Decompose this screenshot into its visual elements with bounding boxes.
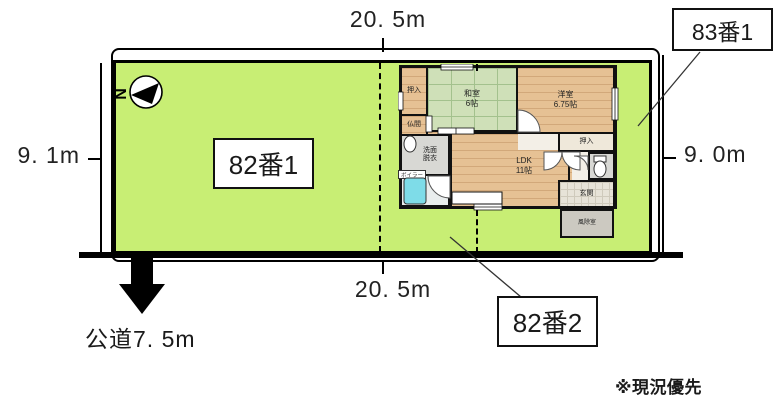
floor-plan: 押入 仏間 和室 6帖 洋室 6.75帖 洗面 脱衣 LDK 11帖 押入 玄関… xyxy=(398,64,622,242)
room-label: 押入 xyxy=(580,138,594,146)
parcel-number: 83番1 xyxy=(692,13,753,47)
road-edge-line xyxy=(79,252,683,258)
room-label: 洗面 脱衣 xyxy=(423,147,437,163)
room-closet-top: 押入 xyxy=(400,66,428,116)
hallway-lower xyxy=(572,152,588,180)
boiler-tag: ボイラー xyxy=(398,170,426,179)
room-vestibule: 風除室 xyxy=(560,209,614,238)
room-label: 風除室 xyxy=(578,220,596,227)
room-toilet xyxy=(588,152,615,180)
room-closet-right: 押入 xyxy=(558,132,615,152)
room-label: 和室 6帖 xyxy=(464,89,480,108)
footnote: ※現況優先 xyxy=(615,373,702,398)
dimension-bottom: 20. 5m xyxy=(333,276,453,303)
boundary-dashed-line-1 xyxy=(379,63,381,252)
room-youshitsu: 洋室 6.75帖 xyxy=(516,66,615,134)
parcel-label-83-1: 83番1 xyxy=(672,8,773,51)
parcel-number: 82番2 xyxy=(513,303,582,340)
site-plan-diagram: N 押入 仏間 和室 6帖 洋室 6.75帖 洗面 脱衣 LDK 11帖 押入 xyxy=(0,0,778,407)
boiler-label: ボイラー xyxy=(401,171,423,179)
parcel-number: 82番1 xyxy=(229,145,298,182)
road-arrow-icon xyxy=(118,256,166,318)
road-label: 公道7. 5m xyxy=(85,320,196,354)
dimension-top: 20. 5m xyxy=(328,6,448,33)
room-label: LDK 11帖 xyxy=(516,156,532,175)
dimension-right: 9. 0m xyxy=(684,141,776,168)
room-washitsu: 和室 6帖 xyxy=(426,66,518,132)
hallway-upper xyxy=(518,134,558,150)
parcel-label-82-1: 82番1 xyxy=(213,138,314,189)
room-label: 仏間 xyxy=(407,121,421,129)
room-butsuma: 仏間 xyxy=(400,114,428,136)
room-label: 洋室 6.75帖 xyxy=(554,90,578,109)
dimension-left: 9. 1m xyxy=(0,142,80,169)
parcel-label-82-2: 82番2 xyxy=(497,296,598,347)
room-label: 玄関 xyxy=(580,190,594,198)
room-label: 押入 xyxy=(407,87,421,95)
room-genkan: 玄関 xyxy=(558,180,615,208)
